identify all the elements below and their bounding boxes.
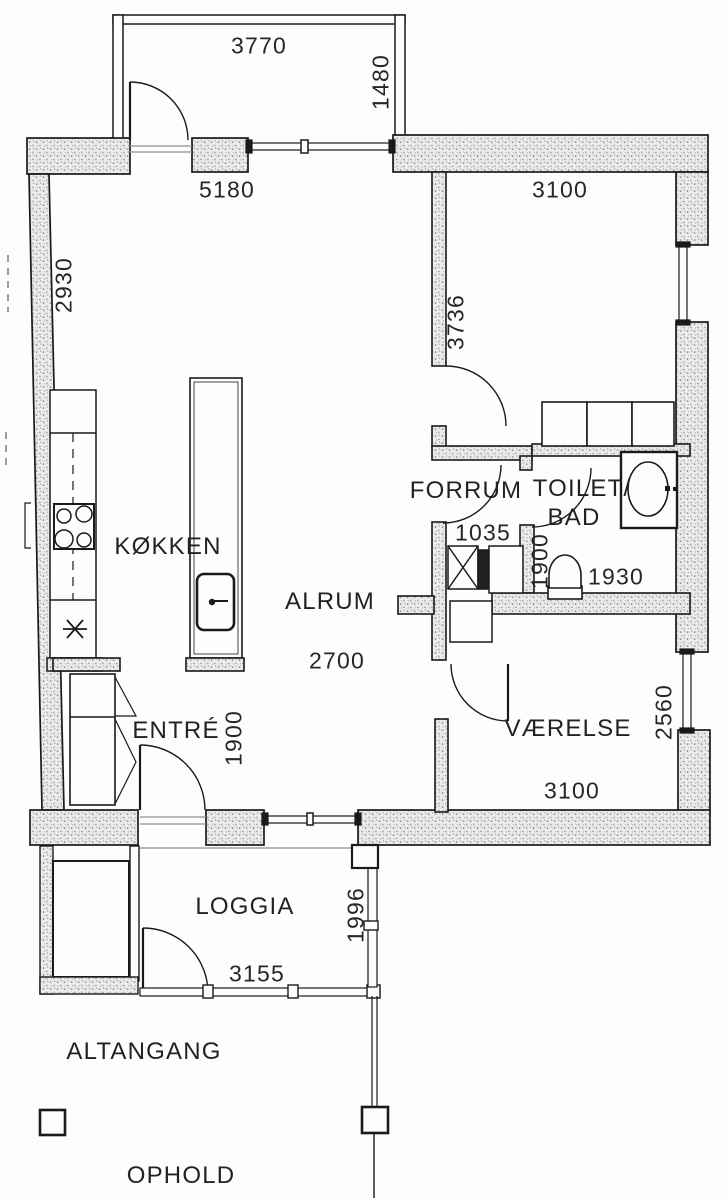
column-left bbox=[40, 1110, 65, 1135]
loggia-door-swing bbox=[143, 928, 208, 993]
dim-loggia-width: 3155 bbox=[229, 961, 285, 988]
column-right bbox=[362, 1107, 388, 1133]
dim-living-depth: 2700 bbox=[309, 648, 365, 675]
top-room-door-swing bbox=[446, 366, 506, 426]
room-label-bedroom: VÆRELSE bbox=[504, 715, 631, 743]
dim-bath-depth: 1900 bbox=[527, 533, 554, 589]
dim-balcony-depth: 1480 bbox=[368, 54, 395, 110]
room-label-entry: ENTRÉ bbox=[132, 717, 219, 745]
dim-entry-width: 1900 bbox=[221, 710, 248, 766]
room-label-hall: FORRUM bbox=[410, 477, 523, 505]
loggia-structure bbox=[40, 845, 380, 998]
dim-bath-width: 1930 bbox=[588, 564, 644, 591]
dim-bedroom-width: 3100 bbox=[544, 778, 600, 805]
bedroom-door-swing bbox=[451, 664, 508, 721]
room-label-loggia: LOGGIA bbox=[195, 893, 294, 921]
cooktop-icon bbox=[54, 504, 94, 549]
room-label-kitchen: KØKKEN bbox=[114, 533, 221, 561]
top-room-closets bbox=[542, 402, 674, 446]
room-label-living: ALRUM bbox=[285, 588, 375, 616]
dim-living-width: 5180 bbox=[199, 177, 255, 204]
kitchen-island bbox=[186, 378, 244, 671]
entry-wardrobe bbox=[53, 658, 136, 805]
dim-bedroom-depth: 2560 bbox=[651, 684, 678, 740]
room-label-walkway: ALTANGANG bbox=[66, 1038, 221, 1066]
dim-top-room-width: 3100 bbox=[532, 177, 588, 204]
dim-left-wall-height: 2930 bbox=[51, 257, 78, 313]
dim-loggia-depth: 1996 bbox=[343, 887, 370, 943]
dim-top-room-height: 3736 bbox=[443, 294, 470, 350]
balcony-door-swing bbox=[130, 82, 188, 140]
island-sink-icon bbox=[197, 574, 234, 630]
dim-hall-width: 1035 bbox=[455, 520, 511, 547]
room-label-bath-line2: BAD bbox=[548, 504, 601, 532]
floor-plan: KØKKEN ALRUM ENTRÉ FORRUM TOILET/ BAD VÆ… bbox=[0, 0, 726, 1198]
room-label-bath-line1: TOILET/ bbox=[533, 475, 632, 503]
entry-door-swing bbox=[140, 745, 205, 810]
scan-artifacts bbox=[6, 255, 8, 470]
room-label-stay: OPHOLD bbox=[127, 1162, 236, 1190]
dim-balcony-width: 3770 bbox=[231, 33, 287, 60]
